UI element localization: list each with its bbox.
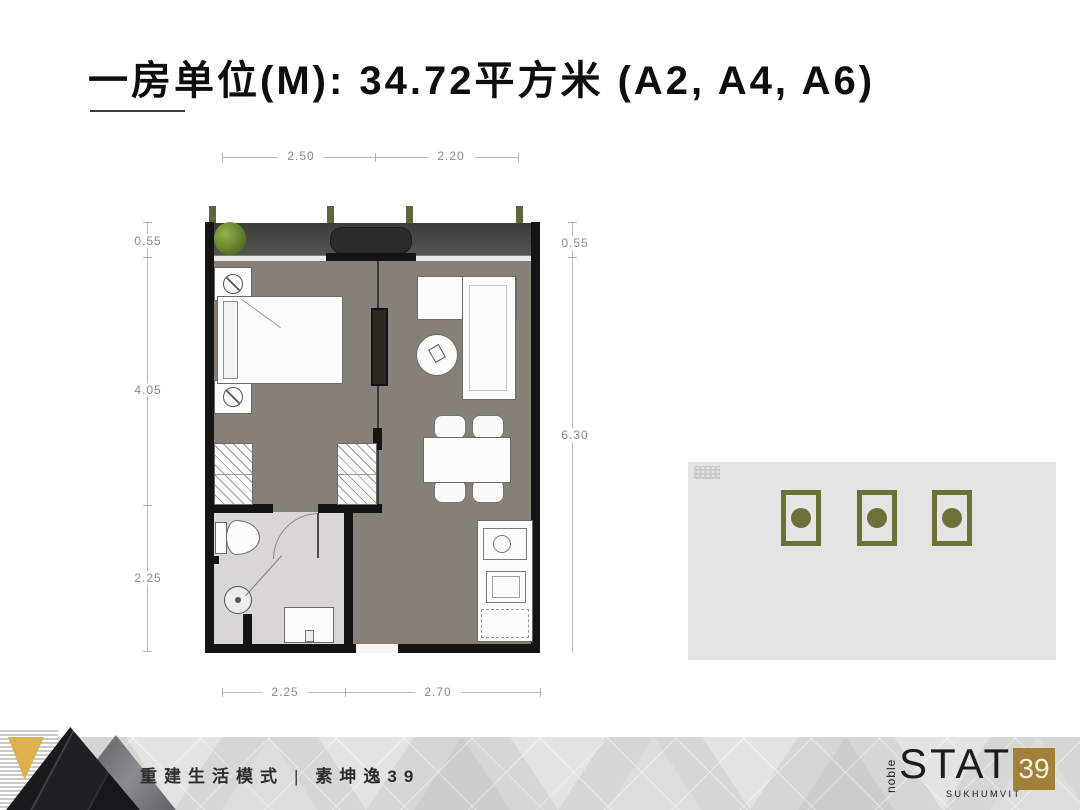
highlighted-unit-marker bbox=[781, 490, 821, 546]
bath-wall-top-left bbox=[205, 504, 273, 513]
pillow bbox=[223, 301, 238, 379]
dim-label-top-1: 2.50 bbox=[278, 149, 324, 163]
dim-label-bottom-1: 2.25 bbox=[262, 685, 308, 699]
table-decor bbox=[428, 344, 446, 363]
dim-label-bottom-2: 2.70 bbox=[415, 685, 461, 699]
plant-icon bbox=[214, 222, 246, 255]
logo-number: 39 bbox=[1018, 753, 1049, 785]
wall-left bbox=[205, 222, 214, 653]
logo-number-badge: 39 bbox=[1013, 748, 1055, 790]
dim-label-top-2: 2.20 bbox=[428, 149, 474, 163]
dim-tick bbox=[143, 651, 152, 652]
dim-line-left bbox=[147, 222, 148, 652]
shower-dot bbox=[235, 597, 241, 603]
dim-label-left-2: 4.05 bbox=[125, 383, 171, 397]
bath-bottom-stub bbox=[243, 614, 252, 645]
unit-dot bbox=[942, 508, 962, 528]
project-name: 素坤逸39 bbox=[315, 767, 420, 786]
nightstand bbox=[214, 380, 252, 414]
title-underline bbox=[90, 110, 185, 112]
dim-tick bbox=[222, 153, 223, 162]
sofa-chaise bbox=[462, 276, 516, 400]
dim-tick bbox=[540, 688, 541, 697]
shower-drain bbox=[224, 586, 252, 614]
dim-tick bbox=[568, 257, 577, 258]
kitchen-counter bbox=[477, 520, 533, 642]
cabinet bbox=[481, 609, 529, 638]
balcony-post bbox=[209, 206, 216, 223]
dining-table bbox=[423, 437, 511, 483]
bath-wall-right bbox=[344, 513, 353, 644]
entry-door-gap bbox=[356, 644, 398, 653]
ac-unit bbox=[330, 227, 412, 254]
bath-divider-stub bbox=[205, 556, 219, 564]
wardrobe bbox=[214, 443, 253, 505]
tagline-text: 重建生活模式 bbox=[140, 767, 284, 786]
blanket-fold bbox=[241, 299, 280, 328]
lamp-icon bbox=[223, 274, 243, 294]
bath-door-leaf bbox=[317, 513, 319, 558]
dim-label-left-3: 2.25 bbox=[125, 571, 171, 585]
dim-label-left-1: 0.55 bbox=[125, 234, 171, 248]
slide: 一房单位(M): 34.72平方米 (A2, A4, A6) 2.50 2.20… bbox=[0, 0, 1080, 810]
sliding-door bbox=[371, 308, 388, 386]
wardrobe bbox=[337, 443, 377, 505]
logo-subtitle: SUKHUMVIT bbox=[946, 789, 1022, 799]
balcony-post bbox=[406, 206, 413, 223]
highlighted-unit-marker bbox=[932, 490, 972, 546]
vanity-sink bbox=[284, 607, 334, 643]
balcony-post bbox=[327, 206, 334, 223]
lamp-icon bbox=[223, 387, 243, 407]
footer-tagline: 重建生活模式|素坤逸39 bbox=[140, 762, 420, 787]
dim-tick bbox=[568, 222, 577, 223]
logo-brand: noble bbox=[884, 751, 898, 793]
bed bbox=[217, 296, 343, 384]
highlighted-unit-marker bbox=[857, 490, 897, 546]
dining-chair bbox=[472, 415, 504, 439]
dim-tick bbox=[375, 153, 376, 162]
sofa-seat-line bbox=[469, 285, 507, 391]
balcony-post bbox=[516, 206, 523, 223]
mini-plan-mark bbox=[694, 466, 720, 479]
dim-tick bbox=[222, 688, 223, 697]
faucet bbox=[305, 630, 314, 642]
stove bbox=[486, 571, 526, 603]
dim-tick bbox=[143, 257, 152, 258]
unit-locator-panel bbox=[688, 462, 1056, 660]
bath-wall-top-right bbox=[318, 504, 382, 513]
stove-inner bbox=[492, 576, 520, 598]
dim-tick bbox=[143, 222, 152, 223]
dim-label-right-2: 6.30 bbox=[552, 428, 598, 442]
unit-dot bbox=[791, 508, 811, 528]
dim-tick bbox=[518, 153, 519, 162]
dining-chair bbox=[434, 415, 466, 439]
dim-tick bbox=[143, 505, 152, 506]
tagline-separator: | bbox=[294, 767, 305, 786]
unit-dot bbox=[867, 508, 887, 528]
sink-basin bbox=[493, 535, 511, 553]
page-title: 一房单位(M): 34.72平方米 (A2, A4, A6) bbox=[88, 48, 875, 106]
dim-label-right-1: 0.55 bbox=[552, 236, 598, 250]
kitchen-sink bbox=[483, 528, 527, 560]
coffee-table bbox=[416, 334, 458, 376]
dim-tick bbox=[345, 688, 346, 697]
